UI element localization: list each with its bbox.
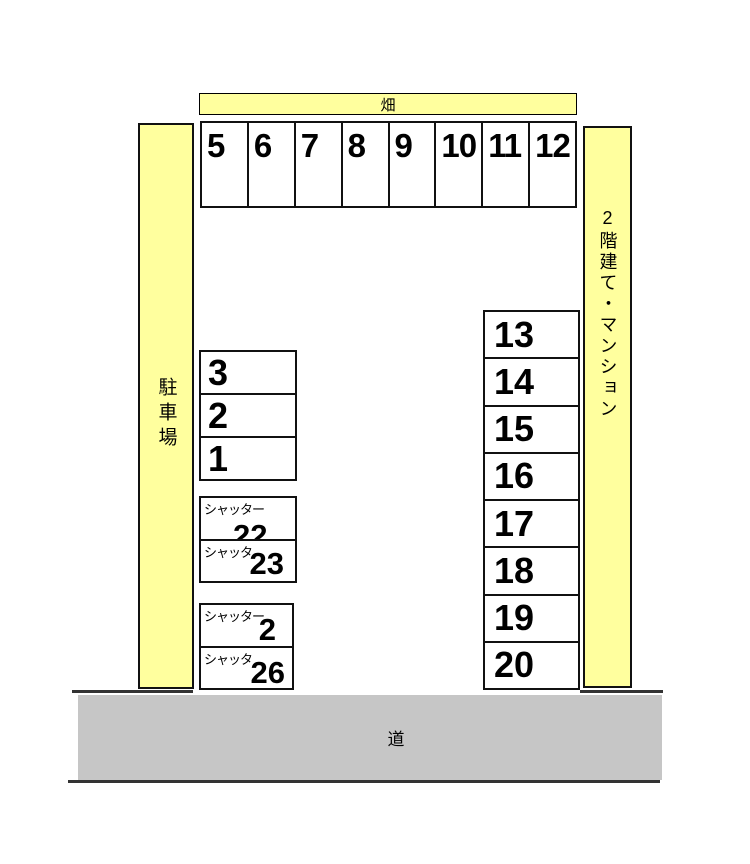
shutter-number: 26 [251,657,285,688]
shutter-space-22: シャッター 22 [201,498,295,541]
road-edge-line-bottom [68,780,660,783]
parking-space-7: 7 [296,123,343,206]
building-label: 2階建て・マンション [595,208,621,420]
parking-space-9: 9 [390,123,437,206]
shutter-group-lower: シャッター 2 シャッタ 26 [199,603,294,690]
parking-lot-diagram: 畑 5 6 7 8 9 10 11 12 駐車場 2階建て・マンション 3 2 … [0,0,750,864]
parking-space-17: 17 [485,501,578,548]
shutter-space-23: シャッタ 23 [201,541,295,582]
shutter-group-upper: シャッター 22 シャッタ 23 [199,496,297,583]
field-label: 畑 [380,94,395,115]
shutter-number: 22 [233,520,267,541]
shutter-label: シャッター [204,606,264,625]
parking-space-12: 12 [530,123,575,206]
right-space-group: 13 14 15 16 17 18 19 20 [483,310,580,690]
left-space-group: 3 2 1 [199,350,297,481]
parking-space-11: 11 [483,123,530,206]
road-edge-line-right [580,690,663,693]
upper-space-row: 5 6 7 8 9 10 11 12 [200,121,577,208]
field-strip: 畑 [199,93,577,115]
building-boundary-strip: 2階建て・マンション [583,126,632,688]
parking-space-2: 2 [201,395,295,438]
shutter-number: 2 [259,614,276,645]
parking-space-18: 18 [485,548,578,595]
parking-space-1: 1 [201,438,295,479]
parking-space-3: 3 [201,352,295,395]
road-edge-line-left [72,690,193,693]
shutter-label: シャッター [204,499,264,518]
parking-space-8: 8 [343,123,390,206]
parking-space-6: 6 [249,123,296,206]
parking-space-13: 13 [485,312,578,359]
parking-space-10: 10 [436,123,483,206]
parking-space-5: 5 [202,123,249,206]
road-label: 道 [388,725,405,750]
parking-space-15: 15 [485,407,578,454]
parking-space-19: 19 [485,596,578,643]
parking-lot-boundary-strip: 駐車場 [138,123,194,689]
shutter-label: シャッタ [204,542,252,561]
parking-space-16: 16 [485,454,578,501]
shutter-space-2: シャッター 2 [201,605,292,648]
road-strip: 道 [78,695,662,780]
shutter-space-26: シャッタ 26 [201,648,292,689]
parking-space-20: 20 [485,643,578,688]
parking-space-14: 14 [485,359,578,406]
parking-lot-label: 駐車場 [153,377,180,452]
shutter-label: シャッタ [204,649,252,668]
shutter-number: 23 [250,548,284,579]
